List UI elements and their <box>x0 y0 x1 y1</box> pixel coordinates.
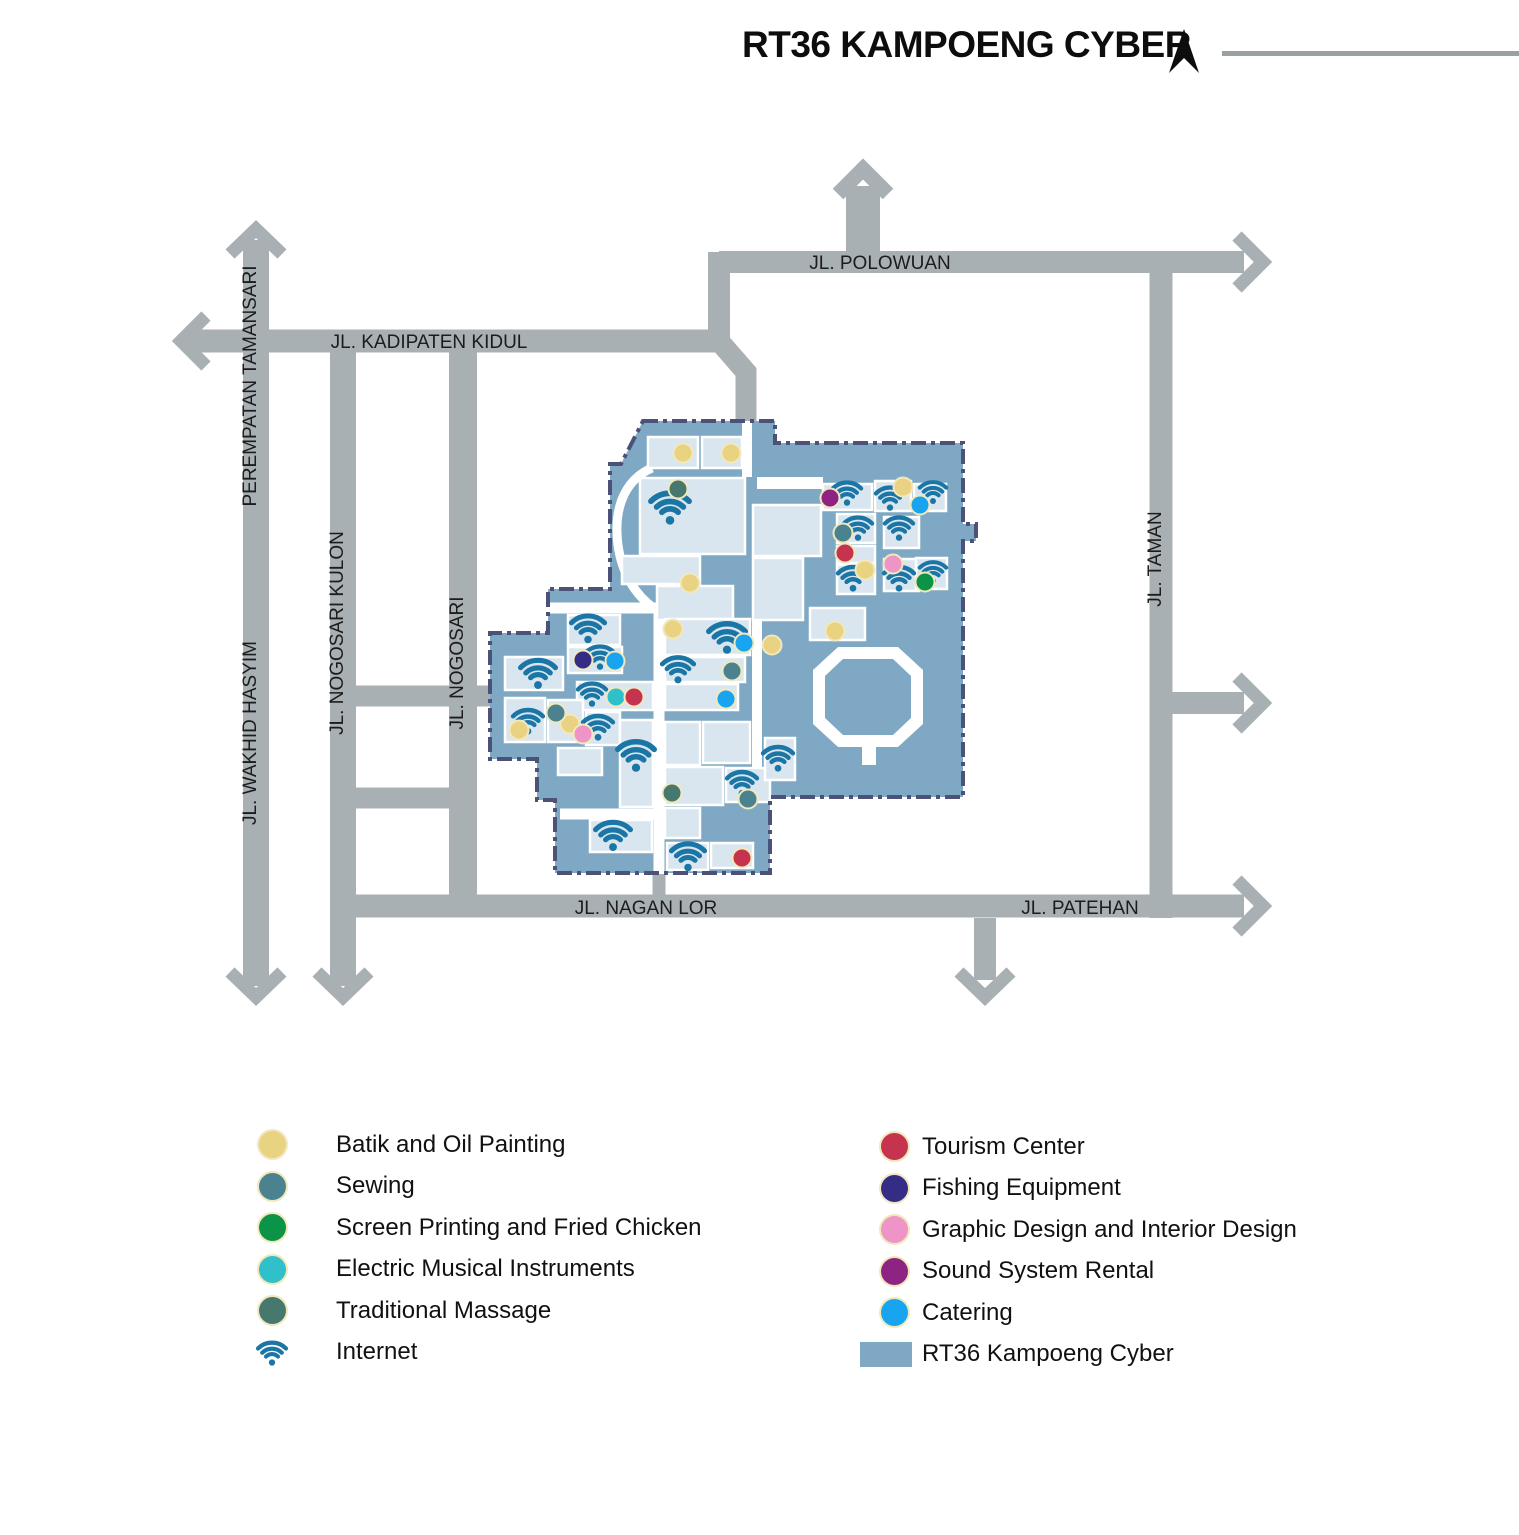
legend-item: Graphic Design and Interior Design <box>872 1209 1297 1251</box>
dot-batik <box>856 561 875 580</box>
legend-icon <box>250 1131 336 1158</box>
building <box>665 808 700 838</box>
legend-label-internet: Internet <box>336 1338 417 1366</box>
legend-item: Sewing <box>250 1166 702 1208</box>
street-label-wakhid: JL. WAKHID HASYIM <box>240 641 261 825</box>
building <box>640 478 745 554</box>
street-label-nogosari: JL. NOGOSARI <box>447 596 468 729</box>
dot-batik <box>674 444 693 463</box>
legend-label-sound: Sound System Rental <box>922 1257 1154 1285</box>
legend-icon <box>250 1297 336 1324</box>
screen-dot-icon <box>259 1214 286 1241</box>
dot-sound <box>821 489 840 508</box>
dot-sewing <box>547 704 566 723</box>
dot-batik <box>664 620 683 639</box>
dot-batik <box>510 721 529 740</box>
legend-item: Screen Printing and Fried Chicken <box>250 1207 702 1249</box>
dot-batik <box>894 478 913 497</box>
legend-item: Tourism Center <box>872 1126 1297 1168</box>
building <box>753 505 821 556</box>
wifi-internet-icon <box>255 1338 289 1366</box>
legend-icon <box>250 1173 336 1200</box>
legend-label-massage: Traditional Massage <box>336 1297 551 1325</box>
building <box>558 748 602 775</box>
building <box>703 722 750 763</box>
area-swatch-icon <box>860 1342 912 1367</box>
dot-catering <box>911 496 930 515</box>
dot-batik <box>826 622 845 641</box>
sound-dot-icon <box>881 1258 908 1285</box>
legend-label-graphic: Graphic Design and Interior Design <box>922 1216 1297 1244</box>
street-label-patehan: JL. PATEHAN <box>1021 898 1139 919</box>
legend-item: Sound System Rental <box>872 1251 1297 1293</box>
dot-batik <box>763 636 782 655</box>
dot-tourism <box>836 544 855 563</box>
sewing-dot-icon <box>259 1173 286 1200</box>
dot-tourism <box>625 688 644 707</box>
legend-item: Fishing Equipment <box>872 1168 1297 1210</box>
street-label-taman: JL. TAMAN <box>1145 511 1166 606</box>
dot-electric <box>607 688 626 707</box>
legend-item: Electric Musical Instruments <box>250 1249 702 1291</box>
street-label-tamansari: PEREMPATAN TAMANSARI <box>240 265 261 506</box>
dot-catering <box>717 690 736 709</box>
street-label-nagan-lor: JL. NAGAN LOR <box>575 898 718 919</box>
massage-dot-icon <box>259 1297 286 1324</box>
dot-catering <box>606 652 625 671</box>
dot-sewing <box>723 662 742 681</box>
dot-sewing <box>739 790 758 809</box>
map-page: RT36 KAMPOENG CYBER <box>0 0 1519 1535</box>
street-label-nogosari-kulon: JL. NOGOSARI KULON <box>327 531 348 735</box>
legend-icon <box>872 1216 922 1243</box>
legend-item: Internet <box>250 1332 702 1374</box>
legend-item: Batik and Oil Painting <box>250 1124 702 1166</box>
batik-dot-icon <box>259 1131 286 1158</box>
graphic-dot-icon <box>881 1216 908 1243</box>
dot-graphic <box>574 725 593 744</box>
building <box>665 722 700 765</box>
legend-icon <box>250 1338 336 1366</box>
street-label-polowuan: JL. POLOWUAN <box>809 253 950 274</box>
legend-icon <box>250 1256 336 1283</box>
dot-fishing <box>574 651 593 670</box>
fishing-dot-icon <box>881 1175 908 1202</box>
dot-screen <box>916 573 935 592</box>
legend-label-batik: Batik and Oil Painting <box>336 1131 565 1159</box>
legend-icon <box>872 1342 922 1367</box>
legend-label-area: RT36 Kampoeng Cyber <box>922 1340 1174 1368</box>
legend-label-catering: Catering <box>922 1299 1013 1327</box>
legend-icon <box>872 1299 922 1326</box>
legend-item: RT36 Kampoeng Cyber <box>872 1334 1297 1376</box>
legend-item: Traditional Massage <box>250 1290 702 1332</box>
dot-graphic <box>884 555 903 574</box>
legend-icon <box>872 1133 922 1160</box>
dot-sewing <box>834 524 853 543</box>
street-label-kadipaten: JL. KADIPATEN KIDUL <box>331 332 528 353</box>
tourism-dot-icon <box>881 1133 908 1160</box>
electric-dot-icon <box>259 1256 286 1283</box>
building <box>753 558 803 620</box>
dot-batik <box>681 574 700 593</box>
legend-label-tourism: Tourism Center <box>922 1133 1085 1161</box>
catering-dot-icon <box>881 1299 908 1326</box>
legend-label-fishing: Fishing Equipment <box>922 1174 1121 1202</box>
legend-right-column: Tourism Center Fishing Equipment Graphic… <box>872 1126 1297 1375</box>
dot-catering <box>735 634 754 653</box>
building <box>620 720 653 807</box>
dot-massage <box>663 784 682 803</box>
legend-icon <box>250 1214 336 1241</box>
dot-tourism <box>733 849 752 868</box>
dot-batik <box>722 444 741 463</box>
legend-icon <box>872 1175 922 1202</box>
legend-label-screen: Screen Printing and Fried Chicken <box>336 1214 702 1242</box>
dot-massage <box>669 480 688 499</box>
legend-left-column: Batik and Oil Painting Sewing Screen Pri… <box>250 1124 702 1373</box>
legend-label-sewing: Sewing <box>336 1172 415 1200</box>
legend-label-electric: Electric Musical Instruments <box>336 1255 635 1283</box>
legend-icon <box>872 1258 922 1285</box>
legend-item: Catering <box>872 1292 1297 1334</box>
road-connector-kampoeng-north <box>719 332 746 424</box>
